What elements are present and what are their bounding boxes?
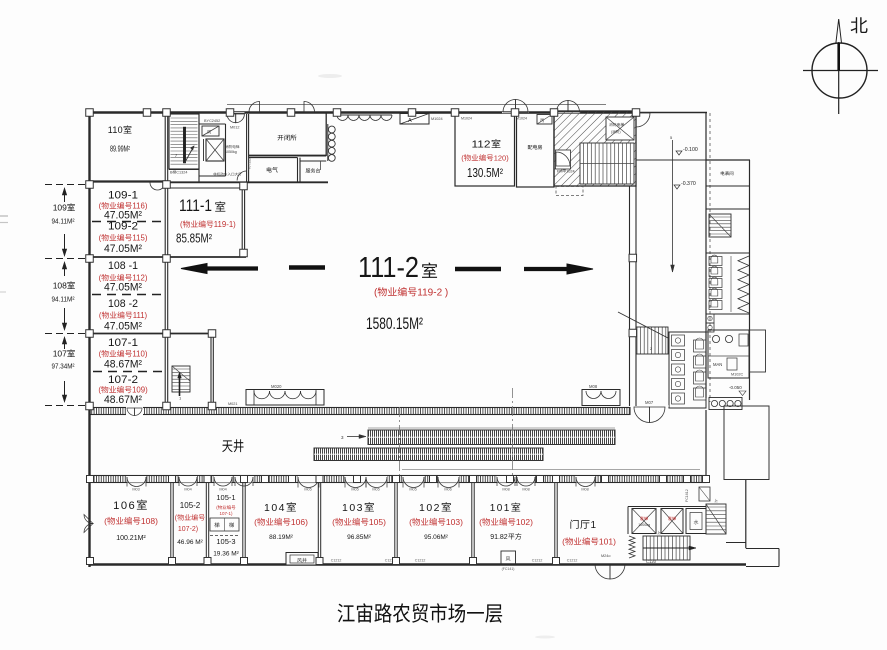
svg-text:106: 106 — [113, 500, 136, 512]
svg-text:M24o: M24o — [601, 554, 611, 558]
svg-text:103): 103) — [446, 517, 463, 527]
svg-text:(: ( — [409, 517, 412, 527]
svg-text:M012: M012 — [230, 126, 240, 130]
svg-text:1050kg: 1050kg — [225, 150, 237, 154]
svg-text:2: 2 — [650, 347, 652, 351]
svg-text:48.67M²: 48.67M² — [104, 359, 142, 371]
svg-text:19.36 M²: 19.36 M² — [213, 551, 239, 558]
svg-text:48.67M²: 48.67M² — [104, 394, 142, 406]
svg-text:130.5M²: 130.5M² — [467, 165, 503, 180]
svg-text:M08: M08 — [581, 488, 588, 492]
svg-text:C1212: C1212 — [532, 559, 543, 563]
svg-text:47.05M²: 47.05M² — [104, 243, 142, 255]
svg-text:105-3: 105-3 — [216, 537, 235, 546]
svg-text:C1212: C1212 — [567, 559, 578, 563]
svg-text:97.34M²: 97.34M² — [52, 362, 75, 371]
svg-text:(FC141): (FC141) — [502, 567, 515, 571]
svg-text:109: 109 — [53, 203, 67, 213]
svg-text:(: ( — [479, 517, 482, 527]
svg-text:85.85M²: 85.85M² — [176, 232, 212, 246]
svg-text:C1212: C1212 — [331, 559, 342, 563]
svg-text:96.85M²: 96.85M² — [347, 534, 372, 541]
svg-text:1000kg: 1000kg — [638, 523, 650, 527]
svg-text:110): 110) — [132, 350, 147, 359]
svg-text:FM: FM — [557, 170, 562, 174]
svg-text:C1324: C1324 — [176, 171, 187, 175]
svg-text:47.05M²: 47.05M² — [104, 282, 142, 294]
svg-text:119-1): 119-1) — [214, 220, 236, 229]
svg-text:112: 112 — [472, 139, 491, 151]
svg-text:1024: 1024 — [566, 170, 574, 174]
svg-text:M08: M08 — [502, 488, 509, 492]
svg-text:(: ( — [332, 517, 335, 527]
svg-text:M1024: M1024 — [431, 117, 443, 121]
svg-text:M03: M03 — [132, 488, 139, 492]
svg-text:M07: M07 — [645, 400, 654, 405]
svg-text:120): 120) — [494, 154, 510, 163]
svg-text:M08: M08 — [589, 384, 598, 389]
svg-text:(: ( — [99, 274, 102, 283]
svg-text:M08: M08 — [522, 488, 529, 492]
svg-text:111): 111) — [133, 311, 148, 320]
svg-text:(: ( — [99, 234, 102, 243]
svg-text:M05: M05 — [351, 488, 358, 492]
svg-text:111-2: 111-2 — [358, 252, 419, 284]
svg-text:101): 101) — [599, 537, 616, 547]
svg-text:95.06M²: 95.06M² — [424, 534, 449, 541]
svg-text:(: ( — [180, 220, 183, 229]
svg-text:105-1: 105-1 — [216, 493, 235, 502]
svg-text:89.99M²: 89.99M² — [110, 145, 130, 154]
svg-text:105): 105) — [369, 517, 386, 527]
svg-text:1: 1 — [591, 520, 597, 531]
svg-text:108): 108) — [141, 516, 158, 526]
svg-text:91.82: 91.82 — [490, 534, 508, 541]
svg-text:107-2): 107-2) — [178, 526, 198, 533]
svg-text:-0.370: -0.370 — [681, 181, 696, 187]
svg-text:115): 115) — [132, 234, 147, 243]
svg-text:88.19M²: 88.19M² — [269, 534, 294, 541]
svg-text:MAN: MAN — [713, 362, 722, 367]
svg-text:M021: M021 — [228, 402, 238, 406]
svg-text:94.11M²: 94.11M² — [52, 217, 75, 226]
svg-text:101: 101 — [490, 503, 511, 514]
svg-text:(: ( — [562, 537, 565, 547]
svg-text:108: 108 — [53, 281, 67, 291]
svg-text:M1024: M1024 — [516, 117, 527, 121]
svg-text:BYC2452: BYC2452 — [204, 119, 220, 123]
svg-text:103: 103 — [342, 502, 364, 514]
svg-text:Y07322: Y07322 — [248, 158, 252, 170]
svg-text:(: ( — [99, 311, 102, 320]
svg-text:94.11M²: 94.11M² — [52, 295, 75, 304]
svg-text:106): 106) — [291, 517, 308, 527]
svg-text:(: ( — [254, 517, 257, 527]
svg-text:M05: M05 — [409, 488, 416, 492]
svg-text:102: 102 — [419, 502, 441, 514]
svg-text:46.96 M²: 46.96 M² — [177, 539, 203, 546]
svg-text:100.21M²: 100.21M² — [116, 535, 146, 542]
svg-text:102): 102) — [516, 517, 533, 527]
svg-text:M06: M06 — [444, 488, 451, 492]
svg-text:107-1: 107-1 — [108, 337, 138, 349]
svg-text:A: A — [408, 118, 412, 124]
svg-text:M04: M04 — [184, 488, 191, 492]
svg-text:(: ( — [99, 202, 102, 211]
svg-text:M05: M05 — [304, 488, 311, 492]
svg-text:C1212: C1212 — [415, 559, 426, 563]
svg-text:107-1): 107-1) — [220, 511, 234, 516]
svg-text:107-2: 107-2 — [108, 374, 138, 386]
svg-text:-0.100: -0.100 — [683, 147, 698, 153]
svg-text:(: ( — [104, 516, 107, 526]
svg-text:C120: C120 — [646, 559, 657, 564]
svg-text:M020: M020 — [271, 384, 282, 389]
svg-text:119-2 ): 119-2 ) — [417, 288, 448, 299]
svg-text:110: 110 — [108, 125, 123, 135]
svg-text:1580.15M²: 1580.15M² — [366, 315, 423, 333]
svg-text:(: ( — [99, 350, 102, 359]
svg-text:107: 107 — [53, 349, 67, 359]
svg-text:): ) — [619, 130, 620, 134]
svg-text:109-2: 109-2 — [108, 221, 138, 233]
svg-text:47.05M²: 47.05M² — [104, 321, 142, 333]
svg-text:108 -2: 108 -2 — [108, 298, 138, 310]
svg-text:111-1: 111-1 — [179, 196, 212, 215]
svg-text:109-1: 109-1 — [108, 190, 138, 202]
svg-text:M102C: M102C — [731, 373, 743, 377]
svg-text:-0.050: -0.050 — [729, 385, 742, 390]
svg-text:(: ( — [98, 386, 101, 395]
svg-text:104: 104 — [264, 502, 286, 514]
svg-text:108 -1: 108 -1 — [108, 260, 138, 272]
svg-text:M05: M05 — [372, 488, 379, 492]
svg-text:105-2: 105-2 — [180, 501, 201, 510]
svg-text:M04: M04 — [219, 488, 226, 492]
svg-text:M1024: M1024 — [461, 117, 472, 121]
svg-text:FC1612: FC1612 — [685, 489, 689, 502]
